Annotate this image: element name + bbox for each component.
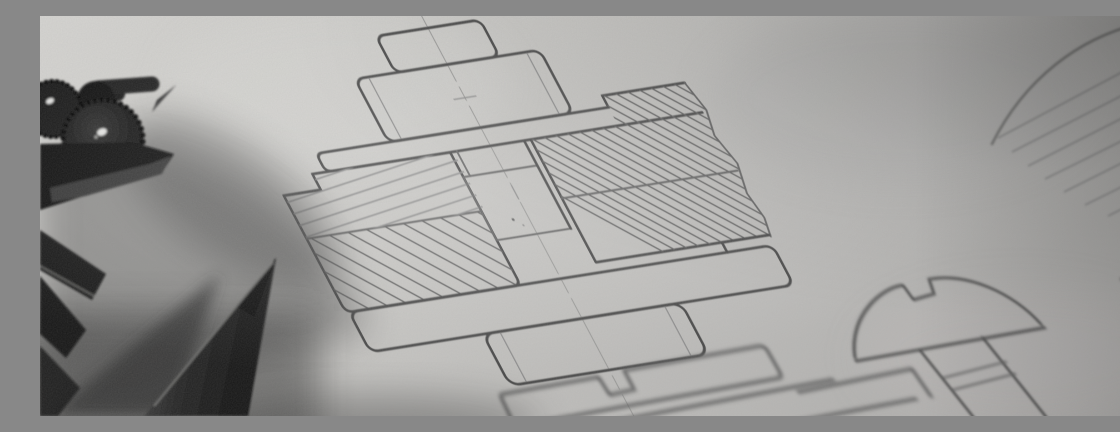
photograph bbox=[40, 16, 1120, 416]
photo-canvas bbox=[40, 16, 1120, 416]
vignette-right bbox=[40, 16, 1120, 416]
